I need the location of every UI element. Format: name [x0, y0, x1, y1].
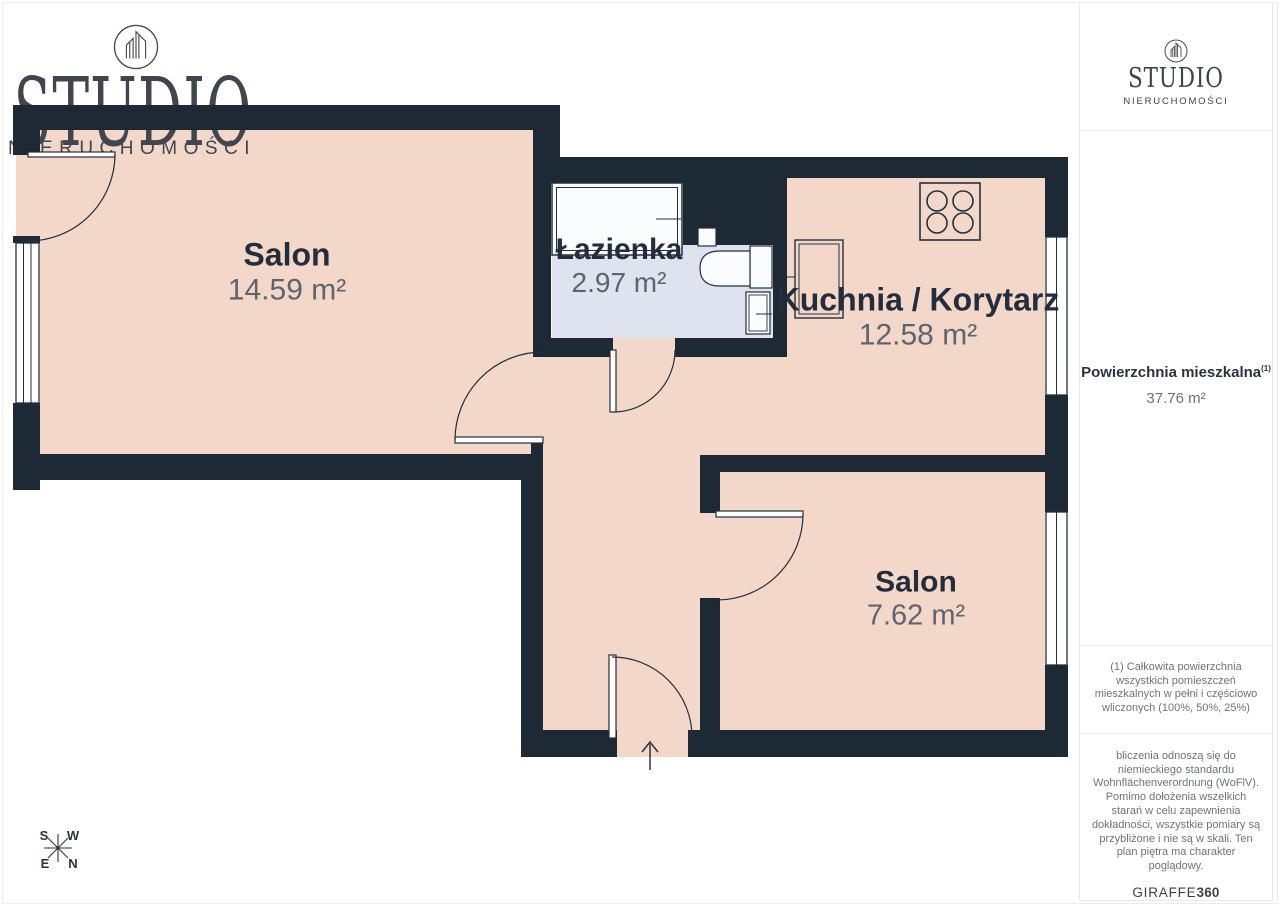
- room-area: 7.62 m²: [867, 600, 965, 633]
- label-salon-2: Salon 7.62 m²: [867, 566, 965, 633]
- room-name: Łazienka: [556, 233, 683, 267]
- label-salon-1: Salon 14.59 m²: [228, 237, 346, 308]
- room-area: 2.97 m²: [556, 267, 683, 299]
- sidebar-logo-subtitle: NIERUCHOMOŚCI: [1123, 96, 1228, 107]
- building-logo-icon: [1164, 39, 1188, 63]
- giraffe360-number: 360: [1196, 885, 1219, 900]
- room-name: Kuchnia / Korytarz: [777, 282, 1060, 319]
- sidebar-logo-section: STUDIO NIERUCHOMOŚCI: [1079, 2, 1273, 131]
- room-name: Salon: [867, 566, 965, 600]
- room-labels: Salon 14.59 m² Łazienka 2.97 m² Kuchnia …: [0, 0, 1080, 906]
- living-area-title: Powierzchnia mieszkalna(1): [1080, 364, 1272, 381]
- sidebar-logo-title: STUDIO: [1128, 65, 1224, 92]
- room-area: 12.58 m²: [777, 319, 1060, 353]
- giraffe360-name: GIRAFFE: [1132, 885, 1196, 900]
- room-area: 14.59 m²: [228, 274, 346, 308]
- giraffe360-logo: GIRAFFE360: [1090, 885, 1262, 900]
- living-area-footnote-ref: (1): [1261, 364, 1271, 373]
- living-area-title-text: Powierzchnia mieszkalna: [1081, 364, 1261, 381]
- sidebar: STUDIO NIERUCHOMOŚCI Powierzchnia mieszk…: [1079, 2, 1273, 901]
- sidebar-footnote-1-section: (1) Całkowita powierzchnia wszystkich po…: [1079, 645, 1273, 734]
- label-kuchnia-korytarz: Kuchnia / Korytarz 12.58 m²: [777, 282, 1060, 353]
- label-lazienka: Łazienka 2.97 m²: [556, 233, 683, 299]
- footnote-1-text: (1) Całkowita powierzchnia wszystkich po…: [1092, 661, 1260, 716]
- room-name: Salon: [228, 237, 346, 274]
- sidebar-summary-section: Powierzchnia mieszkalna(1) 37.76 m²: [1079, 130, 1273, 646]
- footnote-2-text: bliczenia odnoszą się do niemieckiego st…: [1090, 750, 1262, 874]
- sidebar-footnote-2-section: bliczenia odnoszą się do niemieckiego st…: [1079, 733, 1273, 901]
- floorplan-page: STUDIO NIERUCHOMOŚCI: [0, 0, 1280, 906]
- living-area-value: 37.76 m²: [1080, 390, 1272, 407]
